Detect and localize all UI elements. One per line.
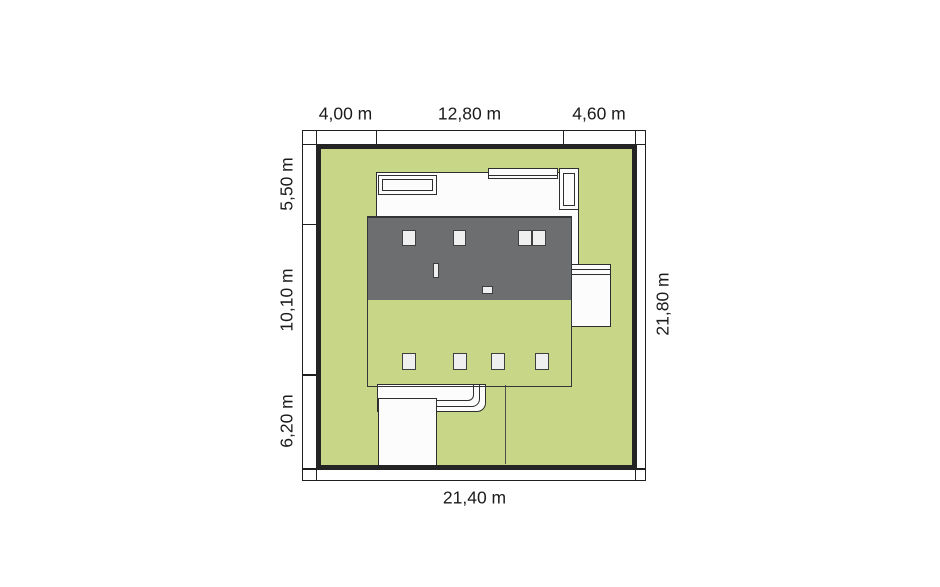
lawn-divider-line [505,385,506,464]
dim-top-right: 4,60 m [572,105,626,123]
entry-step-line [571,264,611,265]
tick-mark [563,130,565,144]
roof-window [402,353,416,370]
dim-right-total: 21,80 m [654,272,672,335]
roof-window [518,230,532,246]
fence-bar-line [489,175,557,176]
dim-top-left: 4,00 m [319,105,373,123]
roof-window [402,230,416,247]
vent-chimney [482,286,493,294]
tick-mark [376,130,378,144]
site-plan-figure: 4,00 m 12,80 m 4,60 m 5,50 m 10,10 m 6,2… [0,0,940,587]
chimney [433,263,440,278]
roof-window [453,230,467,247]
entry-step-line [571,274,611,275]
parking-pad-inner [382,179,433,191]
dim-left-upper: 5,50 m [278,157,296,211]
roof-lower-slope [368,217,571,218]
roof-window [532,230,547,246]
fence-bar [488,168,558,179]
roof-window [453,353,467,370]
garden-path [378,398,437,465]
tick-mark [302,468,316,470]
roof-window [535,353,549,370]
gate-structure-inner [563,173,575,206]
dim-top-center: 12,80 m [438,105,501,123]
tick-mark [302,374,316,376]
roof-window [491,353,505,370]
roof-upper-slope [368,217,571,300]
tick-mark [635,130,637,144]
tick-mark [316,130,318,144]
tick-mark [302,144,316,146]
dim-left-lower: 6,20 m [278,394,296,448]
dim-bottom-total: 21,40 m [443,489,506,507]
tick-mark [302,224,316,226]
entry-step-line [571,269,611,270]
dim-left-middle: 10,10 m [278,268,296,331]
